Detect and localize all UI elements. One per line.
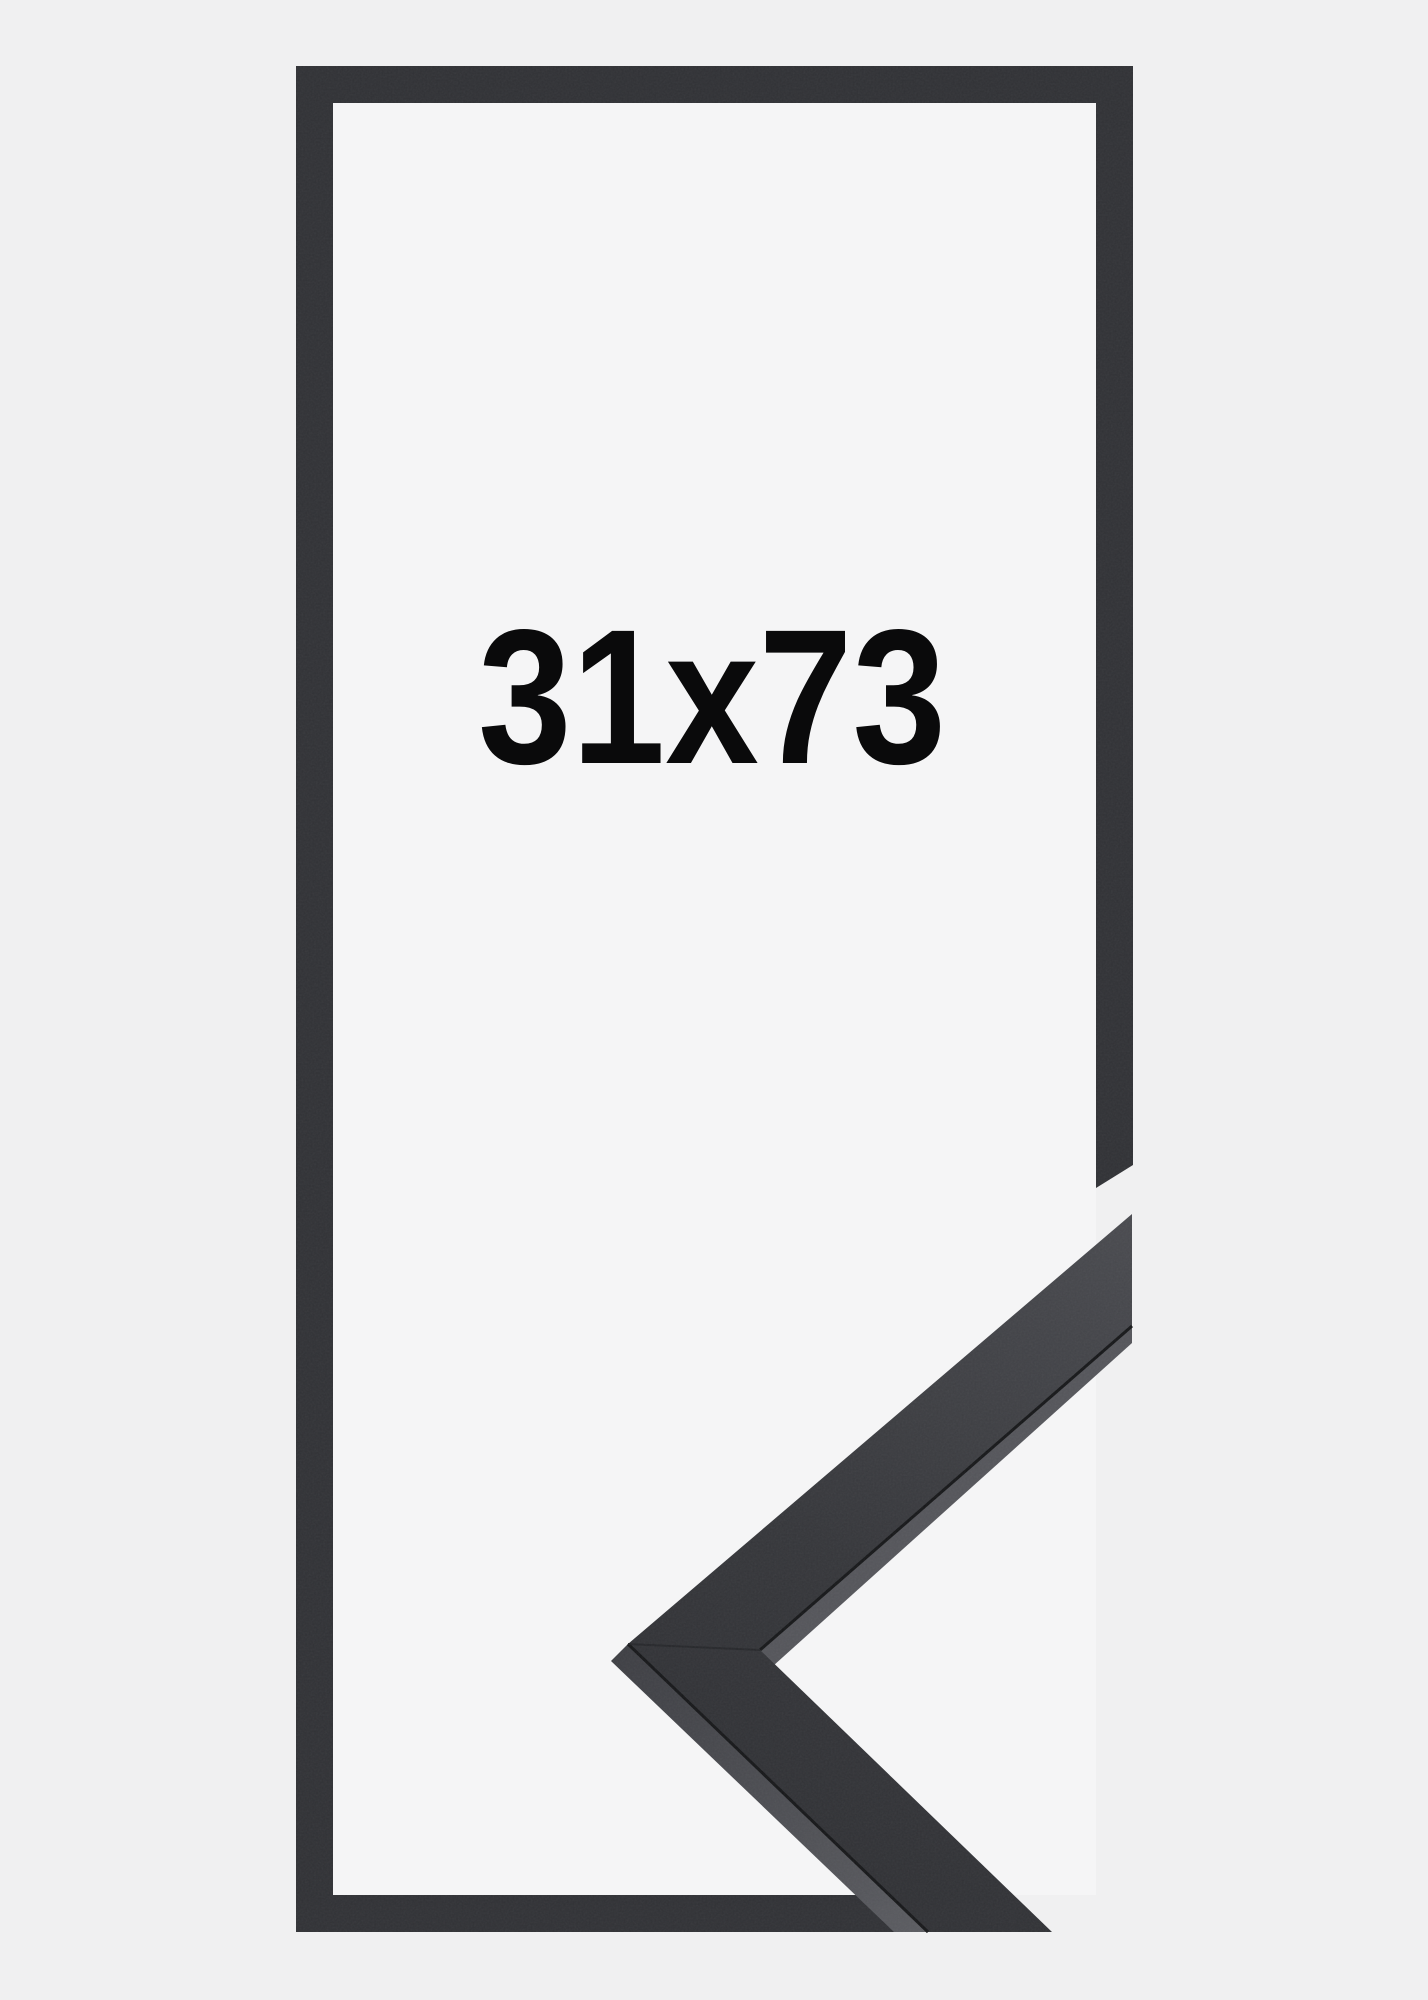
size-label: 31x73 [478,589,946,804]
product-image-stage: 31x73 [0,0,1428,2000]
frame-product-graphic: 31x73 [0,0,1428,2000]
